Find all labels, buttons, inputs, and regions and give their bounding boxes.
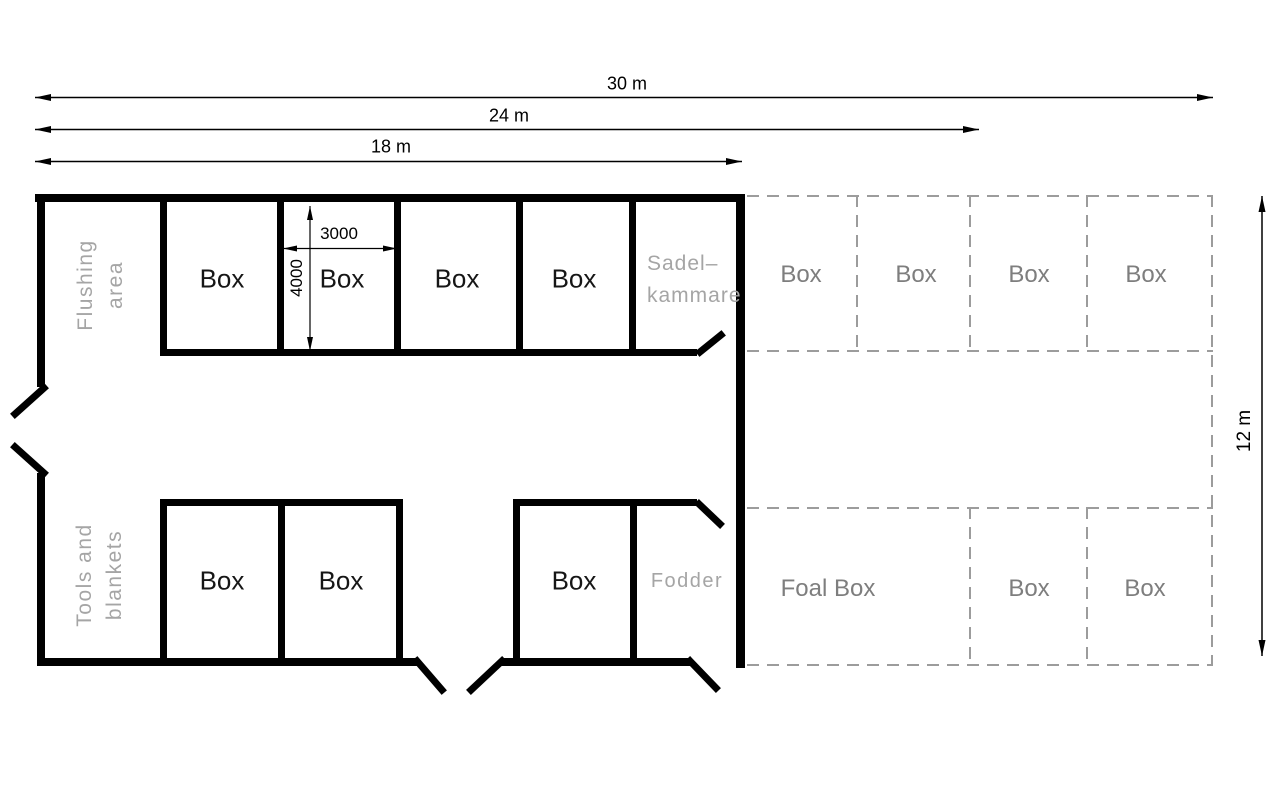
tools-line2: blankets <box>100 523 130 626</box>
dimension-label-3000: 3000 <box>320 224 358 244</box>
wall-left-upper <box>37 194 45 387</box>
room-label-saddle-room: Sadel– kammare <box>647 248 742 312</box>
extension-wall-top <box>747 195 1213 197</box>
wall-left-lower <box>37 473 45 666</box>
flushing-area-line2: area <box>101 239 131 330</box>
extension-label-box: Box <box>1125 261 1166 289</box>
extension-wall-right <box>1211 195 1213 666</box>
room-label-box: Box <box>200 264 245 295</box>
room-label-fodder: Fodder <box>651 566 723 596</box>
stall-partition <box>160 499 167 662</box>
extension-corridor-line-lower <box>747 507 1213 509</box>
room-label-box: Box <box>319 566 364 597</box>
stall-partition <box>630 499 637 662</box>
tools-line1: Tools and <box>70 523 100 626</box>
extension-label-box: Box <box>895 261 936 289</box>
extension-label-box: Box <box>780 261 821 289</box>
extension-label-box: Box <box>1124 575 1165 603</box>
stall-partition <box>160 200 167 356</box>
room-label-tools-blankets: Tools and blankets <box>70 523 130 626</box>
stall-partition <box>513 499 520 662</box>
room-label-box: Box <box>200 566 245 597</box>
dimension-label-18m: 18 m <box>371 137 411 158</box>
extension-partition <box>1086 507 1088 666</box>
extension-corridor-line-upper <box>747 350 1213 352</box>
dimension-label-24m: 24 m <box>489 106 529 127</box>
dimension-label-30m: 30 m <box>607 74 647 95</box>
extension-partition <box>856 195 858 352</box>
flushing-area-line1: Flushing <box>71 239 101 330</box>
stall-partition <box>629 200 636 356</box>
room-label-box: Box <box>435 264 480 295</box>
extension-partition <box>969 507 971 666</box>
wall-bottom-middle <box>500 658 690 666</box>
stall-partition <box>277 200 284 356</box>
room-label-flushing-area: Flushing area <box>71 239 131 330</box>
stall-row-top-bottom-line <box>160 349 697 356</box>
dimension-and-door-lines <box>0 0 1280 806</box>
extension-label-foal-box: Foal Box <box>781 575 876 603</box>
saddle-room-line2: kammare <box>647 280 742 312</box>
room-label-box: Box <box>552 566 597 597</box>
room-label-box: Box <box>320 264 365 295</box>
extension-label-box: Box <box>1008 575 1049 603</box>
floor-plan: 30 m 24 m 18 m 12 m 3000 4000 Flushing a… <box>0 0 1280 806</box>
extension-wall-bottom <box>747 664 1213 666</box>
stall-row-bottom-top-line-b <box>513 499 697 506</box>
stall-partition <box>516 200 523 356</box>
extension-label-box: Box <box>1008 261 1049 289</box>
extension-partition <box>969 195 971 352</box>
dimension-label-12m: 12 m <box>1234 410 1256 452</box>
stall-partition <box>278 499 285 662</box>
dimension-label-4000: 4000 <box>287 259 307 297</box>
stall-partition <box>394 200 401 356</box>
room-label-box: Box <box>552 264 597 295</box>
stall-partition <box>396 499 403 662</box>
wall-top <box>35 194 745 202</box>
extension-partition <box>1086 195 1088 352</box>
saddle-room-line1: Sadel– <box>647 248 742 280</box>
wall-bottom-left <box>37 658 418 666</box>
